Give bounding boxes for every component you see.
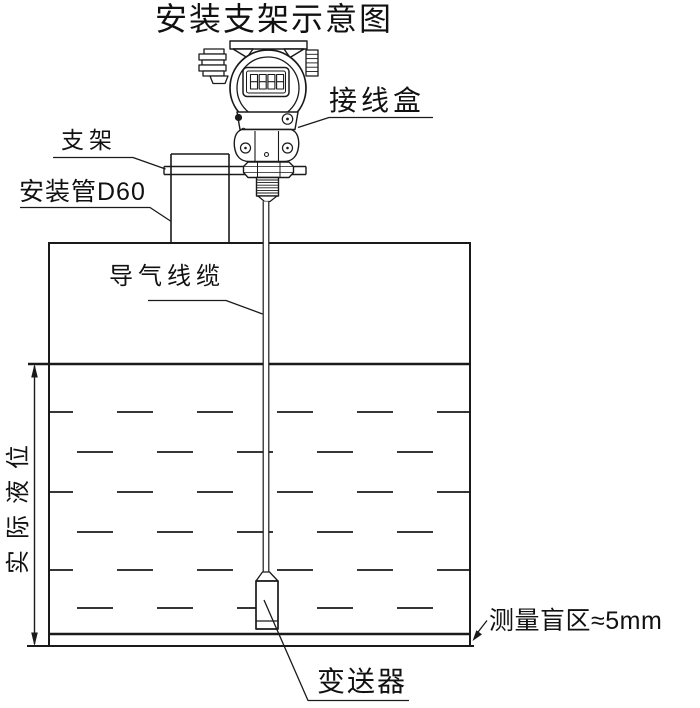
label-junction-box: 接线盒 [329,85,425,117]
conduit-connector-icon [306,50,318,76]
screw-icon [235,114,242,121]
hex-nut-icon [244,162,294,178]
mounting-pipe [171,154,229,243]
leader-bracket [53,158,166,170]
leader-air-cable [148,301,263,315]
tank [27,243,474,646]
cable-gland-icon [199,49,228,84]
probe-transmitter [256,572,278,629]
label-bracket: 支架 [61,127,117,153]
air-guide-cable [263,202,269,573]
thread-icon [257,178,279,202]
label-mounting-pipe: 安装管D60 [19,178,146,207]
transmitter-head [199,41,318,202]
page-title: 安装支架示意图 [155,1,393,38]
arrowhead-icon [473,630,483,641]
diagram-page: 安装支架示意图 接线盒 支架 安装管D60 导气线缆 实际液位 测量盲区≈5mm… [0,0,700,708]
label-blind-zone: 测量盲区≈5mm [489,607,662,636]
leader-junction-box [298,118,433,128]
label-transmitter: 变送器 [317,666,407,698]
label-air-cable: 导气线缆 [109,263,225,291]
label-actual-liquid-level: 实际液位 [5,418,35,590]
lcd-display-icon [243,68,289,97]
leader-mounting-pipe [20,208,171,222]
